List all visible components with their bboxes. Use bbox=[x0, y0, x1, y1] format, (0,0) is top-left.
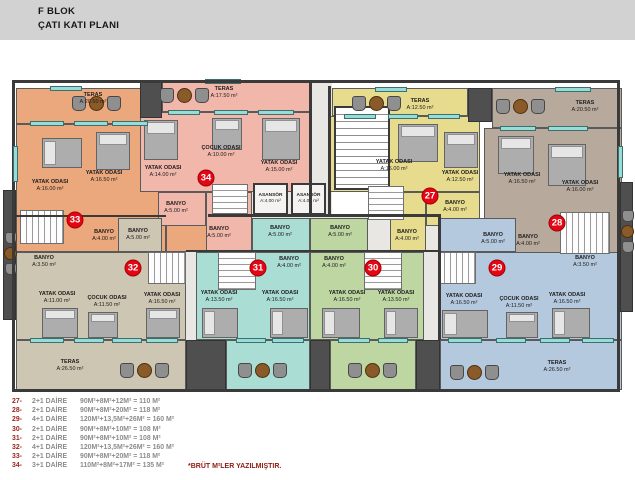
floor-title: ÇATI KATI PLANI bbox=[38, 20, 119, 31]
room-label: BANYOA:4.00 m² bbox=[92, 229, 116, 243]
bed bbox=[444, 132, 478, 168]
wall bbox=[328, 86, 331, 216]
unit-circle-29[interactable]: 29 bbox=[489, 260, 506, 277]
title-bar: F BLOK ÇATI KATI PLANI bbox=[0, 0, 635, 40]
balcony-furniture bbox=[4, 232, 17, 275]
wall bbox=[186, 250, 440, 252]
room-label: TERASA:20.50 m² bbox=[572, 100, 599, 114]
wall bbox=[309, 80, 312, 216]
window bbox=[388, 114, 418, 119]
window bbox=[74, 121, 108, 126]
window bbox=[428, 114, 460, 119]
room-label: YATAK ODASIA:16.50 m² bbox=[262, 290, 299, 304]
room-label: BANYOA:5.00 m² bbox=[268, 225, 292, 239]
terrace-furniture bbox=[348, 363, 397, 378]
window bbox=[496, 338, 526, 343]
bed bbox=[322, 308, 360, 338]
terrace-furniture bbox=[238, 363, 287, 378]
room-label: BANYOA:4.00 m² bbox=[395, 229, 419, 243]
wall bbox=[16, 215, 166, 217]
balcony-furniture bbox=[621, 210, 634, 253]
room-label: BANYOA:5.00 m² bbox=[328, 225, 352, 239]
room-label: YATAK ODASIA:16.50 m² bbox=[549, 292, 586, 306]
window bbox=[50, 86, 82, 91]
room-label: BANYOA:3.50 m² bbox=[32, 255, 56, 269]
room-label: TERASA:26.50 m² bbox=[57, 359, 84, 373]
room-label: BANYOA:5.00 m² bbox=[164, 201, 188, 215]
room-label: YATAK ODASIA:16.50 m² bbox=[144, 292, 181, 306]
window bbox=[13, 146, 18, 182]
window bbox=[375, 87, 407, 92]
room-label: YATAK ODASIA:16.50 m² bbox=[446, 293, 483, 307]
balcony-top-right bbox=[468, 88, 492, 122]
balcony-top-left bbox=[140, 80, 162, 118]
window bbox=[555, 87, 591, 92]
room-label: YATAK ODASIA:12.50 m² bbox=[442, 170, 479, 184]
room-label: YATAK ODASIA:16.50 m² bbox=[329, 290, 366, 304]
window bbox=[112, 121, 148, 126]
legend: 27-2+1 DAİRE90M²+8M²+12M² = 110 M² 28-2+… bbox=[12, 398, 174, 472]
room-label: ÇOCUK ODASIA:11.50 m² bbox=[499, 296, 538, 310]
legend-row: 34-3+1 DAİRE110M²+8M²+17M² = 135 M² bbox=[12, 462, 174, 471]
room-label: BANYOA:5.00 m² bbox=[481, 232, 505, 246]
unit-circle-34[interactable]: 34 bbox=[198, 170, 215, 187]
wall bbox=[438, 214, 441, 340]
stairs-unit-28 bbox=[560, 212, 610, 254]
stairs-unit-29 bbox=[438, 252, 476, 284]
window bbox=[168, 110, 200, 115]
gross-area-note: *BRÜT M²LER YAZILMIŞTIR. bbox=[188, 463, 281, 470]
room-label: YATAK ODASIA:16.00 m² bbox=[32, 179, 69, 193]
room-label: TERASA:12.50 m² bbox=[407, 98, 434, 112]
balcony-bottom-3 bbox=[416, 340, 440, 390]
room-label: TERASA:26.50 m² bbox=[544, 360, 571, 374]
terrace-furniture bbox=[160, 88, 209, 103]
room-label: YATAK ODASIA:11.00 m² bbox=[39, 291, 76, 305]
bed bbox=[498, 136, 534, 174]
room-label: ÇOCUK ODASIA:10.00 m² bbox=[201, 145, 240, 159]
bed bbox=[552, 308, 590, 338]
unit-circle-33[interactable]: 33 bbox=[67, 212, 84, 229]
room-label: YATAK ODASIA:16.00 m² bbox=[562, 180, 599, 194]
room-label: BANYOA:4.00 m² bbox=[443, 200, 467, 214]
room-label: BANYOA:3.50 m² bbox=[573, 255, 597, 269]
window bbox=[258, 110, 294, 115]
unit-circle-31[interactable]: 31 bbox=[250, 260, 267, 277]
window bbox=[214, 110, 248, 115]
legend-row: 28-2+1 DAİRE90M²+8M²+20M² = 118 M² bbox=[12, 407, 174, 416]
bed bbox=[398, 124, 438, 162]
bed bbox=[262, 118, 300, 160]
legend-row: 30-2+1 DAİRE90M²+8M²+10M² = 108 M² bbox=[12, 426, 174, 435]
room-label: TERASA:17.50 m² bbox=[211, 86, 238, 100]
wall bbox=[208, 214, 440, 217]
room-label: YATAK ODASIA:13.50 m² bbox=[201, 290, 238, 304]
window bbox=[30, 338, 64, 343]
room-label: BANYOA:4.00 m² bbox=[322, 256, 346, 270]
bed bbox=[88, 312, 118, 338]
room-label: BANYOA:5.00 m² bbox=[207, 226, 231, 240]
window bbox=[205, 79, 241, 84]
unit-circle-32[interactable]: 32 bbox=[125, 260, 142, 277]
window bbox=[500, 126, 536, 131]
bed bbox=[506, 312, 538, 338]
legend-row: 32-4+1 DAİRE120M²+13,5M²+26M² = 160 M² bbox=[12, 444, 174, 453]
room-label: YATAK ODASIA:14.00 m² bbox=[145, 165, 182, 179]
legend-row: 27-2+1 DAİRE90M²+8M²+12M² = 110 M² bbox=[12, 398, 174, 407]
window bbox=[272, 338, 304, 343]
floor-plan-page: F BLOK ÇATI KATI PLANI bbox=[0, 0, 635, 480]
room-label: YATAK ODASIA:13.50 m² bbox=[378, 290, 415, 304]
room-label: ÇOCUK ODASIA:11.50 m² bbox=[87, 295, 126, 309]
elevator-1: ASANSÖRA:4.00 m² bbox=[253, 183, 288, 215]
window bbox=[540, 338, 570, 343]
bed bbox=[270, 308, 308, 338]
balcony-bottom-1 bbox=[186, 340, 226, 390]
window bbox=[618, 146, 623, 178]
window bbox=[548, 126, 588, 131]
room-label: YATAK ODASIA:15.00 m² bbox=[261, 160, 298, 174]
stairs-unit-32 bbox=[148, 252, 186, 284]
unit-circle-27[interactable]: 27 bbox=[422, 188, 439, 205]
legend-row: 29-4+1 DAİRE120M²+13,5M²+26M² = 160 M² bbox=[12, 416, 174, 425]
bed bbox=[146, 308, 180, 338]
room-label: YATAK ODASIA:16.50 m² bbox=[504, 172, 541, 186]
terrace-furniture bbox=[352, 96, 401, 111]
bed bbox=[42, 308, 78, 338]
legend-row: 33-2+1 DAİRE90M²+8M²+20M² = 118 M² bbox=[12, 453, 174, 462]
bed bbox=[96, 132, 130, 170]
window bbox=[338, 338, 370, 343]
terrace-furniture bbox=[120, 363, 169, 378]
window bbox=[448, 338, 482, 343]
window bbox=[378, 338, 408, 343]
room-label: BANYOA:5.00 m² bbox=[126, 228, 150, 242]
unit-circle-28[interactable]: 28 bbox=[549, 215, 566, 232]
stairs-unit-34 bbox=[212, 184, 248, 214]
unit-circle-30[interactable]: 30 bbox=[365, 260, 382, 277]
window bbox=[74, 338, 104, 343]
window bbox=[344, 114, 376, 119]
block-title: F BLOK bbox=[38, 6, 75, 17]
window bbox=[146, 338, 178, 343]
window bbox=[30, 121, 64, 126]
window bbox=[236, 338, 266, 343]
room-label: YATAK ODASIA:16.00 m² bbox=[376, 159, 413, 173]
bed bbox=[202, 308, 238, 338]
balcony-bottom-2 bbox=[310, 340, 330, 390]
room-label: BANYOA:4.00 m² bbox=[516, 234, 540, 248]
bed bbox=[384, 308, 418, 338]
room-label: TERASA:20.50 m² bbox=[80, 92, 107, 106]
terrace-furniture bbox=[450, 365, 499, 380]
window bbox=[112, 338, 142, 343]
bed bbox=[144, 120, 178, 160]
room-label: BANYOA:4.00 m² bbox=[277, 256, 301, 270]
bed bbox=[42, 138, 82, 168]
terrace-furniture bbox=[496, 99, 545, 114]
room-label: YATAK ODASIA:16.50 m² bbox=[86, 170, 123, 184]
bed bbox=[442, 310, 488, 338]
legend-row: 31-2+1 DAİRE90M²+8M²+10M² = 108 M² bbox=[12, 435, 174, 444]
window bbox=[582, 338, 614, 343]
